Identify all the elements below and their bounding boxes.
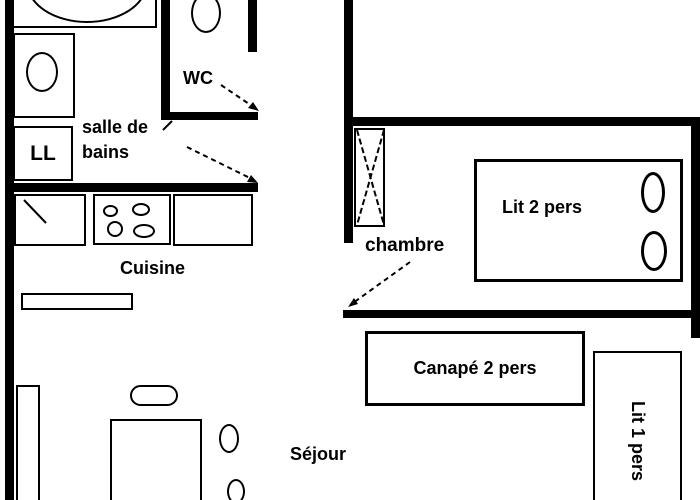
stove-burner	[107, 221, 123, 237]
pillow-bottom	[641, 231, 667, 271]
wall-kitchen-top	[9, 183, 258, 192]
living-room-label: Séjour	[290, 444, 346, 465]
washing-machine: LL	[13, 126, 73, 181]
kitchen-counter-sink	[14, 194, 86, 246]
stove-burner	[132, 203, 150, 216]
bathroom-label-line1: salle de	[82, 115, 148, 140]
single-bed-label: Lit 1 pers	[627, 401, 648, 481]
wall-bedroom-bottom	[343, 310, 699, 318]
sink-basin	[26, 52, 58, 92]
floor-plan: LL Lit 2 pers Canapé 2 pers Lit 1 pers s…	[0, 0, 700, 500]
kitchen-stove	[93, 194, 171, 245]
wall-bedroom-right	[691, 117, 700, 338]
bathroom-pointer-arrow	[187, 147, 258, 183]
window-frame	[354, 128, 385, 227]
coffee-table	[130, 385, 178, 406]
wc-label: WC	[183, 68, 213, 89]
kitchen-shelf	[21, 293, 133, 310]
bathroom-label-line2: bains	[82, 140, 148, 165]
double-bed-label: Lit 2 pers	[502, 197, 582, 218]
bathtub	[12, 0, 157, 28]
sofa-label: Canapé 2 pers	[413, 358, 536, 379]
toilet	[191, 0, 221, 33]
single-bed: Lit 1 pers	[593, 351, 682, 500]
stove-burner	[103, 205, 118, 217]
kitchen-counter-right	[173, 194, 253, 246]
bathroom-label-tick	[163, 121, 172, 130]
wc-pointer-arrow	[221, 85, 259, 111]
washing-machine-label: LL	[30, 142, 56, 166]
wall-wc-bottom	[161, 112, 258, 120]
wall-bedroom-top	[344, 117, 700, 126]
chair-bottom	[227, 479, 245, 500]
stove-burner	[133, 224, 155, 238]
pillow-top	[641, 172, 665, 213]
bedroom-label: chambre	[365, 235, 444, 256]
chair-top	[219, 424, 239, 453]
bathroom-label: salle de bains	[82, 115, 148, 165]
bedroom-pointer-arrow	[348, 262, 410, 307]
wall-wc-right-stub	[248, 0, 257, 52]
kitchen-label: Cuisine	[120, 258, 185, 279]
sofa: Canapé 2 pers	[365, 331, 585, 406]
side-cabinet	[16, 385, 40, 500]
wall-bathroom-wc-divider	[161, 0, 170, 120]
dining-table	[110, 419, 202, 500]
